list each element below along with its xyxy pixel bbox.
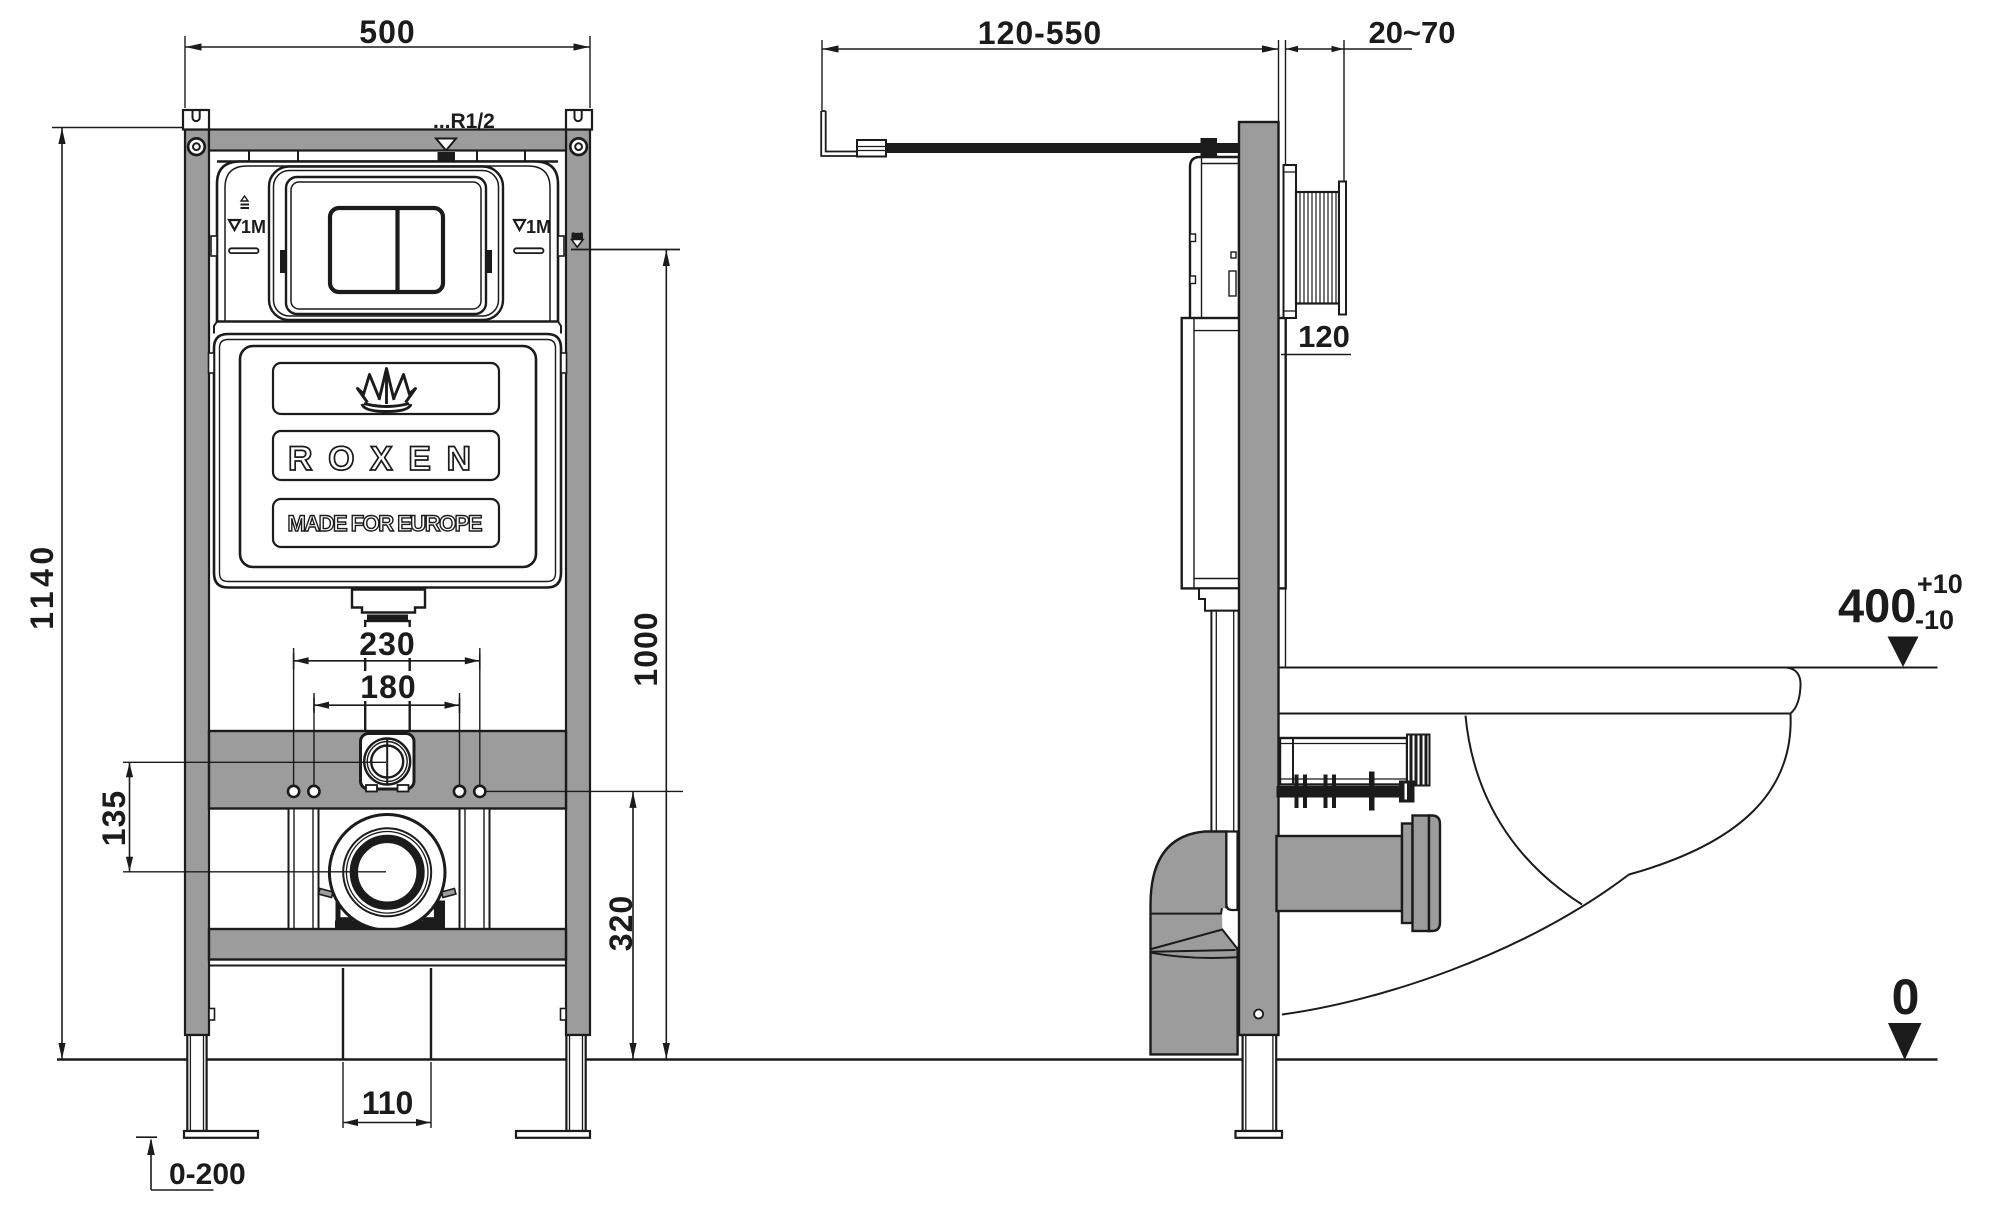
- svg-text:320: 320: [603, 895, 639, 951]
- svg-text:180: 180: [360, 669, 416, 705]
- svg-text:0: 0: [1892, 969, 1920, 1025]
- svg-text:135: 135: [96, 790, 132, 846]
- svg-text:1M: 1M: [241, 217, 266, 237]
- svg-text:...R1/2: ...R1/2: [433, 110, 495, 133]
- svg-text:500: 500: [359, 14, 415, 50]
- svg-text:20~70: 20~70: [1368, 15, 1455, 50]
- svg-text:ROXEN: ROXEN: [288, 440, 485, 478]
- svg-text:0-200: 0-200: [169, 1158, 246, 1191]
- svg-text:1000: 1000: [628, 611, 664, 686]
- svg-text:120-550: 120-550: [978, 15, 1102, 51]
- svg-text:+10: +10: [1917, 569, 1963, 599]
- svg-text:230: 230: [359, 626, 415, 662]
- svg-text:1140: 1140: [24, 542, 60, 629]
- svg-text:-10: -10: [1915, 605, 1954, 635]
- svg-text:MADE FOR EUROPE: MADE FOR EUROPE: [288, 511, 486, 536]
- svg-text:120: 120: [1298, 319, 1350, 354]
- svg-text:110: 110: [362, 1085, 414, 1121]
- svg-text:1M: 1M: [526, 217, 551, 237]
- svg-text:400: 400: [1838, 579, 1916, 632]
